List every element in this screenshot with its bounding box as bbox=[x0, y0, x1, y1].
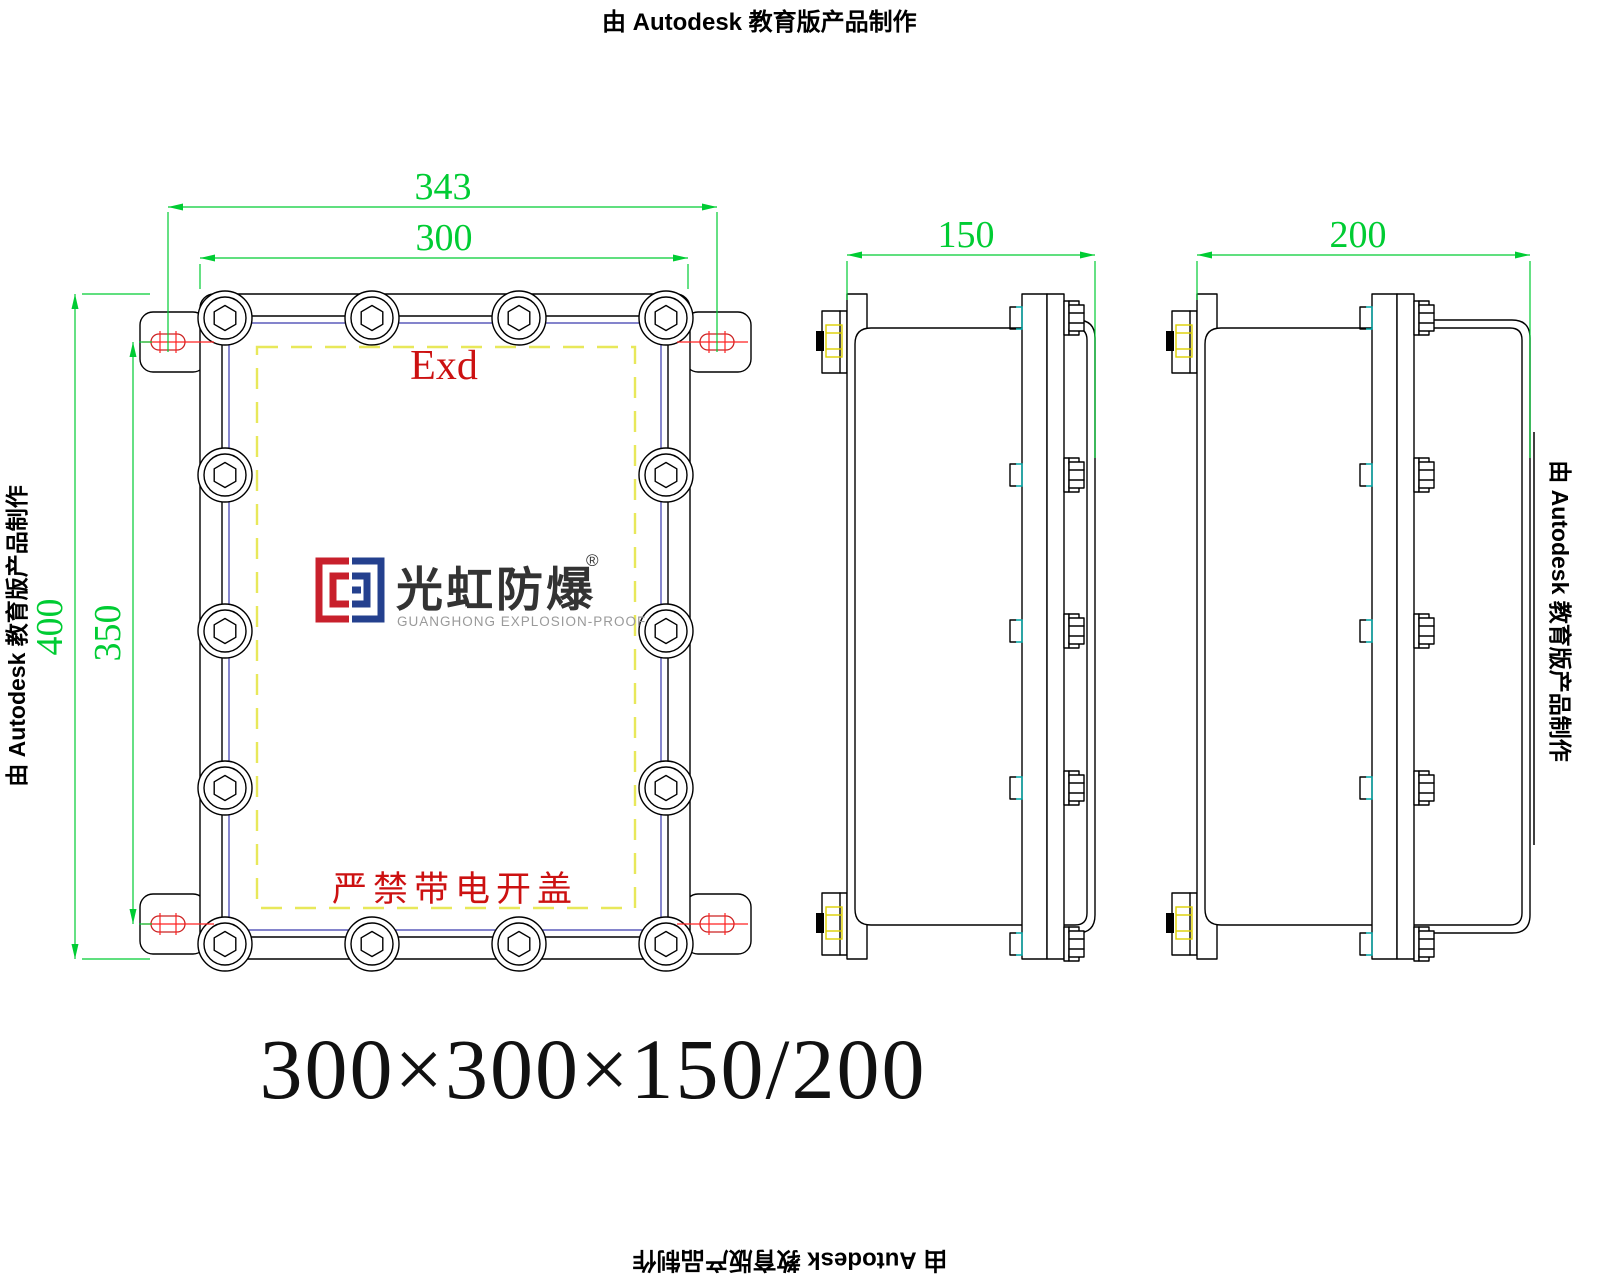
dim-400-label: 400 bbox=[29, 599, 71, 656]
cover-bolt-head bbox=[1069, 931, 1084, 957]
boss-tab-black bbox=[1360, 307, 1366, 329]
hex-bolt-head bbox=[214, 306, 236, 331]
dim-350-label: 350 bbox=[87, 605, 129, 662]
logo-registered-mark: ® bbox=[586, 551, 599, 570]
drawing-canvas: 343 300 400 350 E bbox=[0, 0, 1600, 1280]
cover-bolt-washer bbox=[1414, 301, 1419, 335]
dim-350: 350 bbox=[87, 342, 152, 924]
logo-name-cn: 光虹防爆 bbox=[396, 563, 596, 616]
size-title: 300×300×150/200 bbox=[260, 1021, 927, 1117]
warning-text: 严禁带电开盖 bbox=[332, 870, 578, 909]
exd-marking: Exd bbox=[410, 343, 478, 389]
front-view: 343 300 400 350 E bbox=[29, 166, 751, 971]
hex-bolt-head bbox=[214, 776, 236, 801]
boss-tab-cyan bbox=[1016, 933, 1022, 955]
flange-plate bbox=[1022, 294, 1047, 959]
cover-bolt-head bbox=[1419, 462, 1434, 488]
cover-bolt-washer bbox=[1414, 458, 1419, 492]
boss-tab-cyan bbox=[1366, 933, 1372, 955]
cover-bolt-washer bbox=[1414, 614, 1419, 648]
cover-bolt-head bbox=[1069, 618, 1084, 644]
cover-bolt-washer bbox=[1064, 301, 1069, 335]
dim-300: 300 bbox=[200, 217, 688, 289]
cover-bolt-washer bbox=[1064, 614, 1069, 648]
hex-bolt-head bbox=[508, 306, 530, 331]
cover-bolt-head bbox=[1069, 775, 1084, 801]
cover-bolt-head bbox=[1419, 618, 1434, 644]
cover-bolt-head bbox=[1419, 775, 1434, 801]
cover-bolt-washer bbox=[1064, 771, 1069, 805]
flange-plate bbox=[1372, 294, 1397, 959]
hex-bolt-head bbox=[214, 619, 236, 644]
cover-bolt-head bbox=[1069, 462, 1084, 488]
hex-bolt-head bbox=[361, 932, 383, 957]
bracket-bolt-tip bbox=[816, 913, 824, 933]
logo-name-en: GUANGHONG EXPLOSION-PROOF bbox=[397, 614, 646, 629]
dim-200-label: 200 bbox=[1330, 214, 1387, 256]
side-view-200: 200 bbox=[1166, 214, 1530, 961]
hex-bolt-head bbox=[214, 463, 236, 488]
hex-bolt-head bbox=[214, 932, 236, 957]
side-view-150-geometry bbox=[816, 294, 1095, 961]
dim-300-label: 300 bbox=[416, 217, 473, 259]
cover-bolt-head bbox=[1069, 305, 1084, 331]
boss-tab-black bbox=[1360, 933, 1366, 955]
hex-bolt-head bbox=[655, 619, 677, 644]
hex-bolt-head bbox=[655, 776, 677, 801]
hex-bolt-head bbox=[361, 306, 383, 331]
hex-bolt-head bbox=[655, 306, 677, 331]
cad-drawing-page: { "stamp": { "text": "由 Autodesk 教育版产品制作… bbox=[0, 0, 1600, 1280]
boss-tab-cyan bbox=[1016, 307, 1022, 329]
dim-150-label: 150 bbox=[938, 214, 995, 256]
dim-343-label: 343 bbox=[415, 166, 472, 208]
cover-plate bbox=[1397, 294, 1414, 959]
boss-tab-cyan bbox=[1366, 307, 1372, 329]
cover-bolt-washer bbox=[1414, 771, 1419, 805]
cover-bolt-washer bbox=[1414, 927, 1419, 961]
bracket-bolt-tip bbox=[1166, 331, 1174, 351]
side-view-150: 150 bbox=[816, 214, 1095, 961]
bracket-bolt-tip bbox=[816, 331, 824, 351]
boss-tab-black bbox=[1010, 307, 1016, 329]
cover-plate bbox=[1047, 294, 1064, 959]
cover-bolt-washer bbox=[1064, 458, 1069, 492]
boss-tab-black bbox=[1010, 933, 1016, 955]
box-body-profile bbox=[855, 328, 1022, 925]
side-view-200-geometry bbox=[1166, 294, 1530, 961]
hex-bolt-head bbox=[655, 463, 677, 488]
cover-bolt-head bbox=[1419, 931, 1434, 957]
hex-bolt-head bbox=[508, 932, 530, 957]
box-body-profile bbox=[1205, 328, 1372, 925]
cover-bolt-washer bbox=[1064, 927, 1069, 961]
cover-bolt-head bbox=[1419, 305, 1434, 331]
hex-bolt-head bbox=[655, 932, 677, 957]
bracket-bolt-tip bbox=[1166, 913, 1174, 933]
